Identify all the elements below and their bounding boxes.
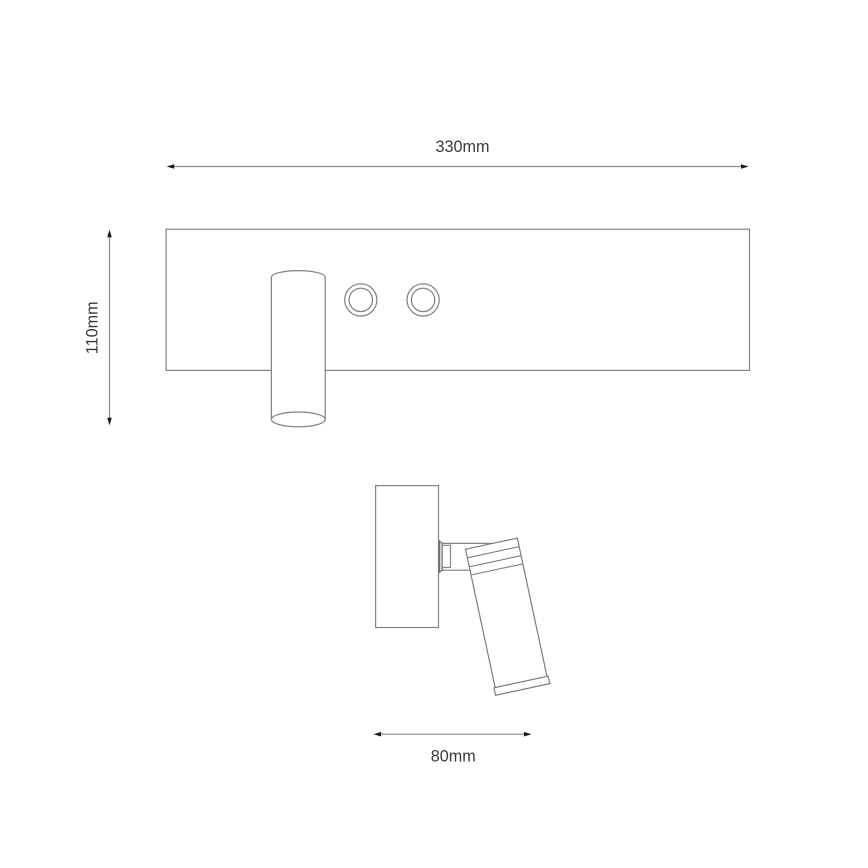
svg-text:80mm: 80mm [431,748,476,766]
svg-text:330mm: 330mm [436,138,490,156]
svg-text:110mm: 110mm [84,301,102,354]
